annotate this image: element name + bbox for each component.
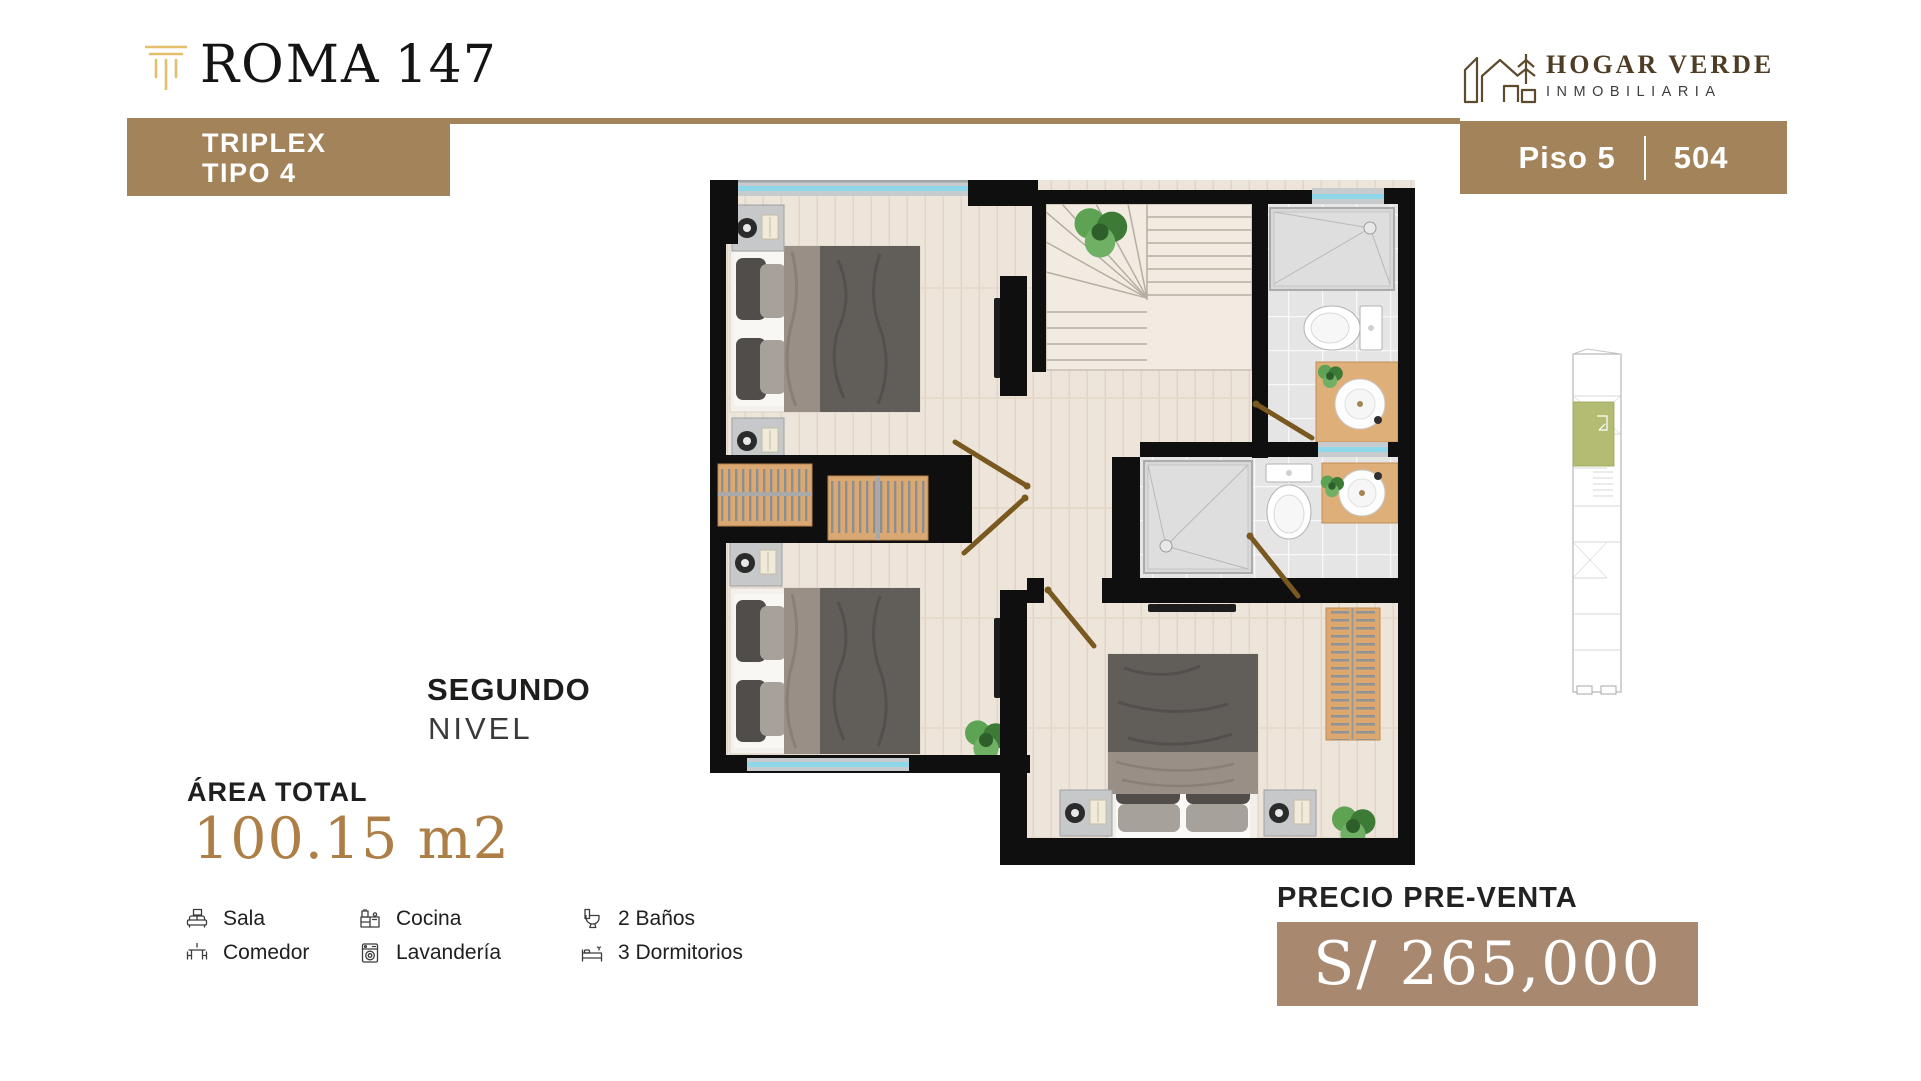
features-column-1: Sala Comedor: [185, 906, 309, 965]
bed-icon: [580, 941, 604, 965]
shower-2: [1144, 461, 1252, 573]
kitchen-icon: [358, 907, 382, 931]
flyer: { "brand": { "name": "ROMA", "number": "…: [0, 0, 1921, 1081]
agency-name: HOGAR VERDE: [1546, 50, 1774, 80]
window-top-right: [1312, 188, 1384, 204]
sofa-icon: [185, 907, 209, 931]
feature-comedor: Comedor: [185, 940, 309, 965]
window-top-left: [738, 180, 968, 196]
price-value: S/ 265,000: [1313, 929, 1662, 999]
feature-label: Cocina: [396, 907, 461, 931]
feature-label: Sala: [223, 907, 265, 931]
house-tree-icon: [1462, 50, 1538, 106]
washing-machine-icon: [358, 941, 382, 965]
window-bottom-left: [747, 758, 909, 771]
area-value: 100.15 m2: [193, 806, 510, 872]
feature-cocina: Cocina: [358, 906, 501, 931]
price-box: S/ 265,000: [1277, 922, 1698, 1006]
shower-1: [1270, 208, 1394, 290]
price-label: PRECIO PRE-VENTA: [1277, 882, 1578, 915]
floor-unit-badge: Piso 5 504: [1460, 121, 1787, 194]
level-title: SEGUNDO: [427, 672, 591, 708]
dining-table-icon: [185, 941, 209, 965]
agency-logo: HOGAR VERDE INMOBILIARIA: [1462, 50, 1774, 106]
highlighted-unit: [1573, 402, 1614, 466]
features-column-2: Cocina Lavandería: [358, 906, 501, 965]
toilet-1: [1304, 306, 1382, 350]
header-band: [450, 118, 1460, 124]
feature-banos: 2 Baños: [580, 906, 743, 931]
window-bath-divider: [1318, 442, 1388, 457]
building-location-map: [1563, 346, 1635, 698]
floor-plan: [710, 180, 1415, 865]
wardrobe: [1326, 608, 1380, 740]
feature-sala: Sala: [185, 906, 309, 931]
feature-label: 2 Baños: [618, 907, 695, 931]
unit-number: 504: [1674, 140, 1729, 176]
unit-type-line1: TRIPLEX: [202, 128, 450, 158]
unit-type-badge: TRIPLEX TIPO 4: [127, 118, 450, 196]
project-number: 147: [395, 35, 497, 95]
project-name: ROMA: [200, 35, 381, 95]
agency-tagline: INMOBILIARIA: [1546, 84, 1774, 100]
floor-label: Piso 5: [1518, 140, 1615, 176]
column-icon: [145, 44, 187, 90]
project-title: ROMA147: [200, 36, 497, 94]
features-column-3: 2 Baños 3 Dormitorios: [580, 906, 743, 965]
unit-type-line2: TIPO 4: [202, 158, 450, 188]
vanity-1: [1316, 362, 1398, 442]
feature-dormitorios: 3 Dormitorios: [580, 940, 743, 965]
feature-lavanderia: Lavandería: [358, 940, 501, 965]
level-subtitle: NIVEL: [428, 711, 533, 747]
area-label: ÁREA TOTAL: [187, 777, 368, 808]
badge-divider: [1644, 136, 1646, 180]
toilet-icon: [580, 907, 604, 931]
feature-label: Comedor: [223, 941, 309, 965]
feature-label: 3 Dormitorios: [618, 941, 743, 965]
dressers: [710, 455, 972, 543]
toilet-2: [1266, 464, 1312, 539]
vanity-2: [1321, 463, 1398, 523]
feature-label: Lavandería: [396, 941, 501, 965]
